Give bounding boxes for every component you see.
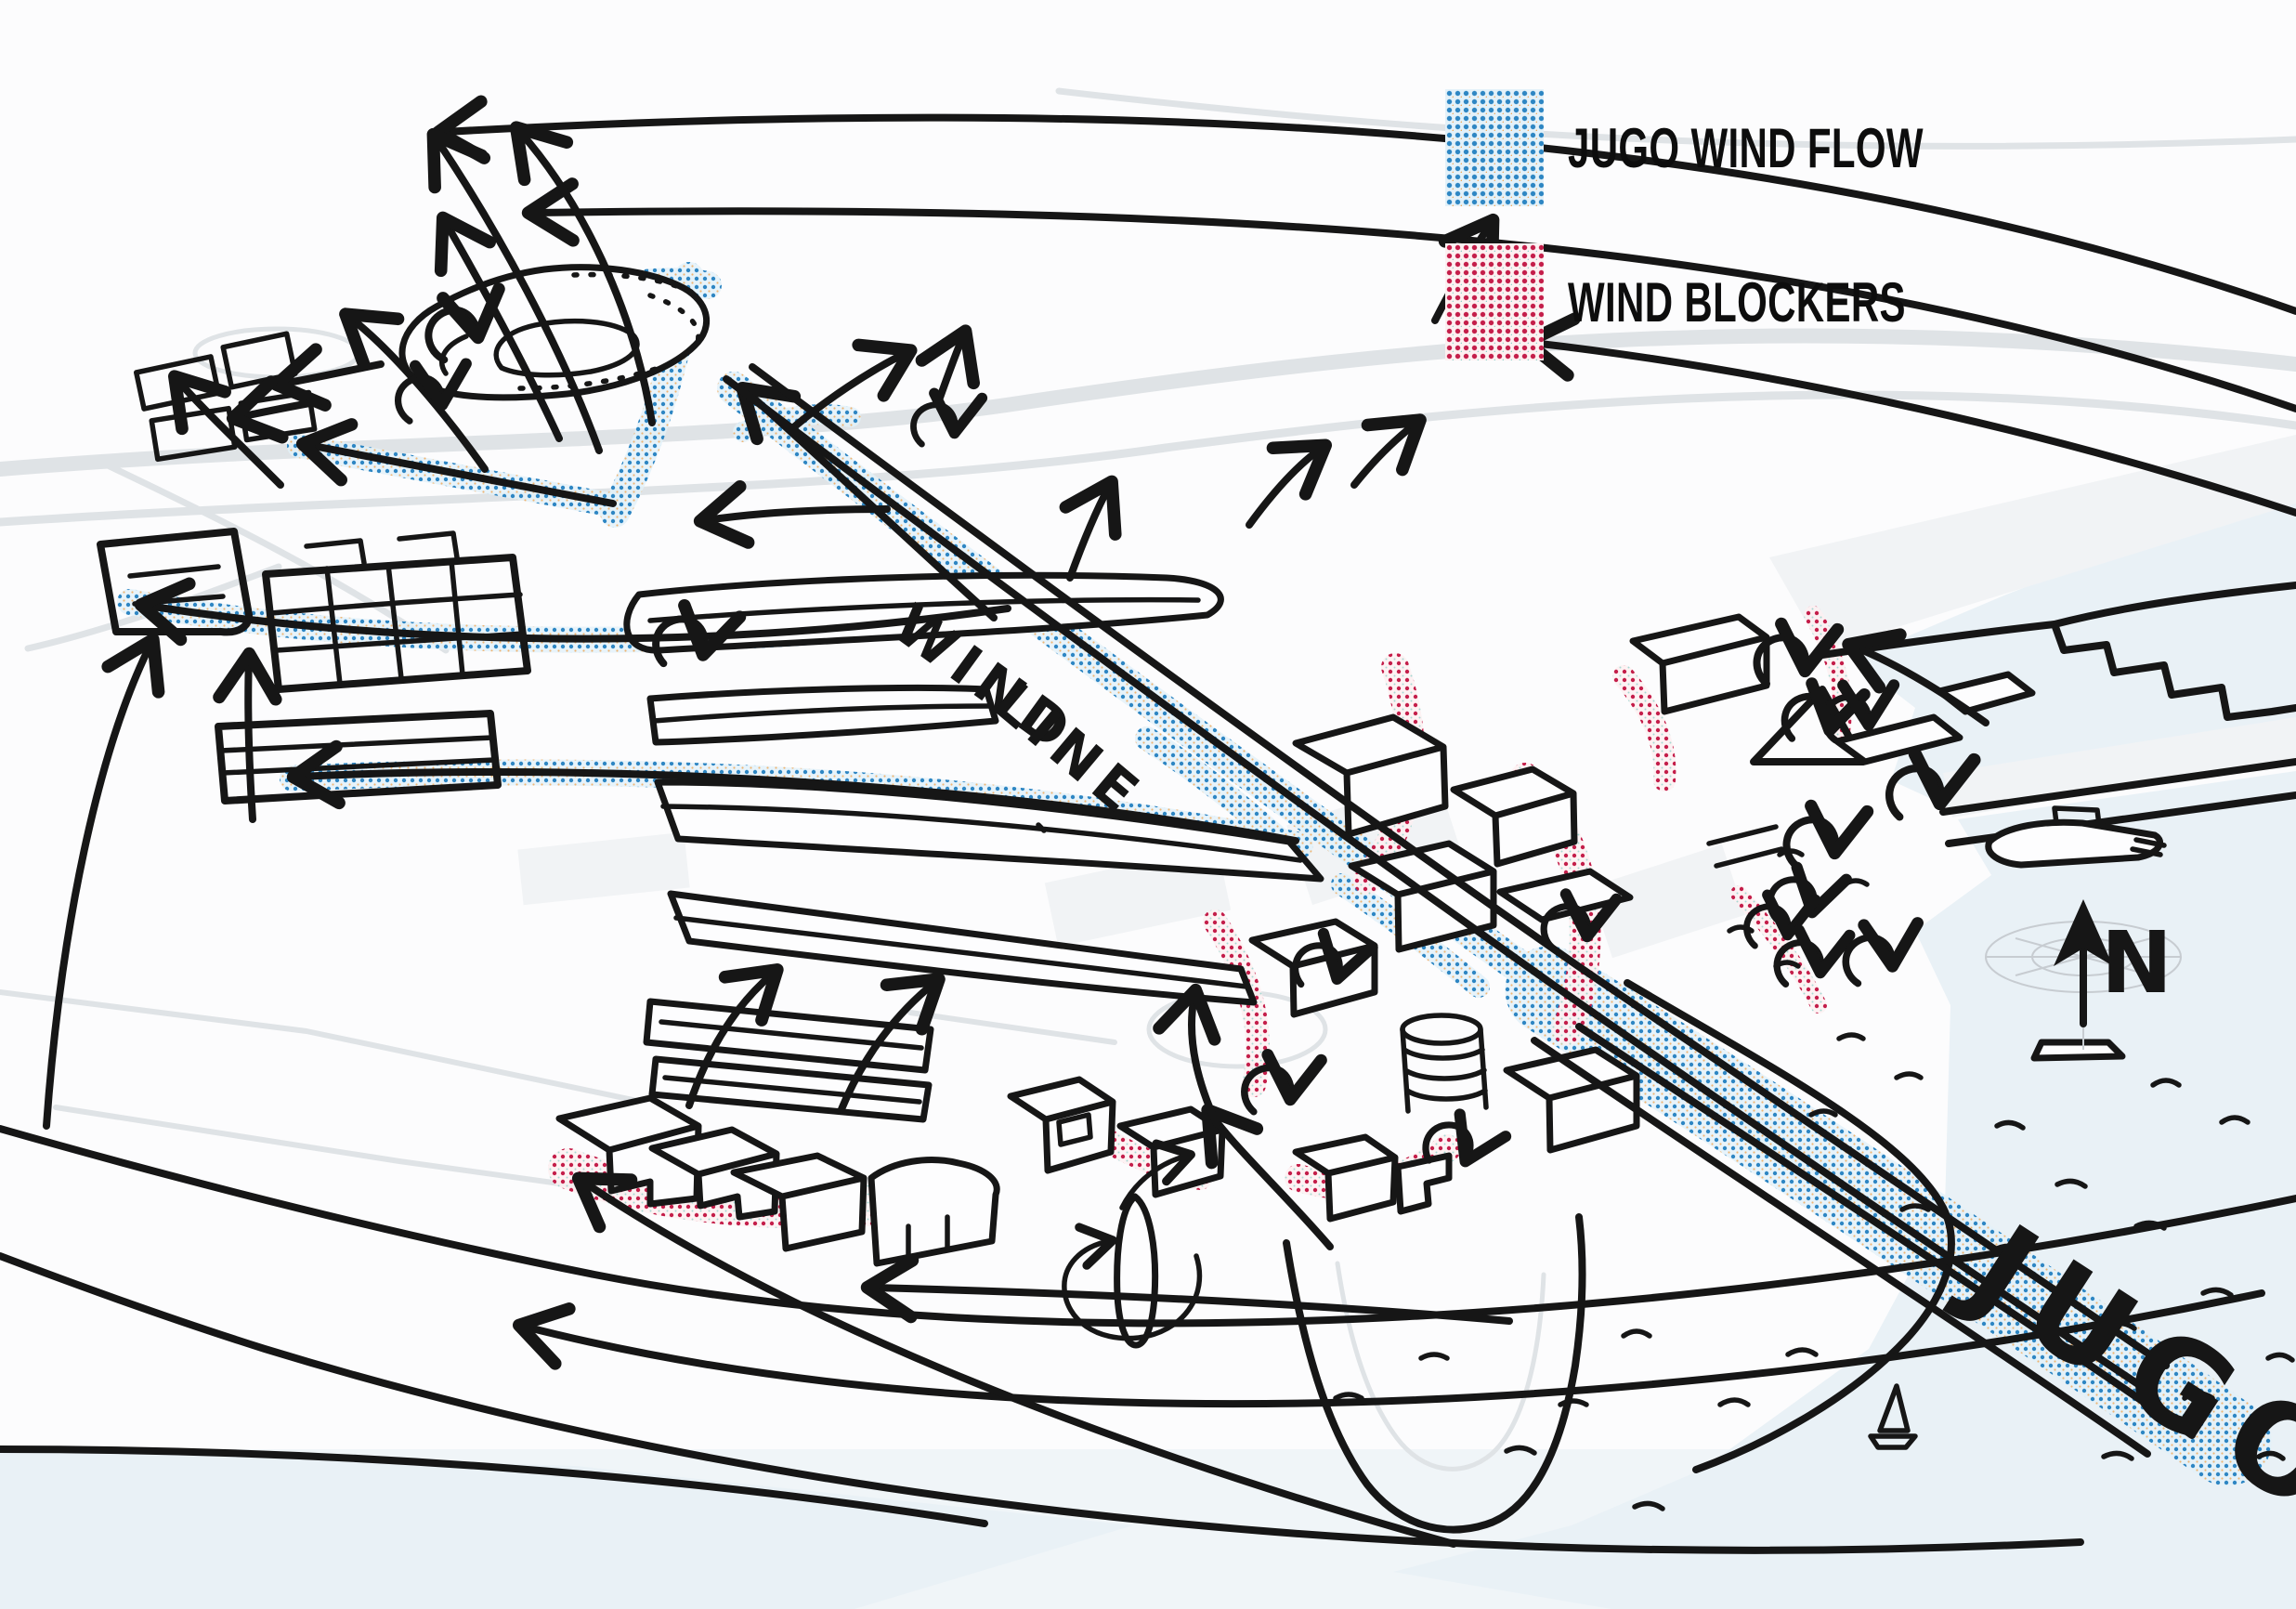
blocker-house-row: [559, 1098, 997, 1263]
centre-house-cluster: [1011, 1079, 1449, 1219]
hatched-cluster: [646, 974, 934, 1119]
wind-blockers-label: WIND BLOCKERS: [1568, 270, 1906, 334]
wind-blockers-swatch: [1445, 243, 1544, 360]
small-boat-sketch: [2034, 1042, 2122, 1058]
legend-item-wind-blockers: WIND BLOCKERS: [1445, 243, 2076, 360]
jugo-wind-flow-label: JUGO WIND FLOW: [1568, 116, 1924, 180]
jugo-wind-flow-swatch: [1445, 89, 1544, 206]
left-block-cluster: [137, 334, 315, 459]
wind-analysis-diagram: { "legend": { "items": [ { "id": "jugo-w…: [0, 0, 2296, 1609]
legend-item-jugo-wind-flow: JUGO WIND FLOW: [1445, 89, 2076, 206]
compass-north-label: N: [2101, 913, 2172, 1013]
ferry-sketch: [1989, 822, 2160, 865]
legend: JUGO WIND FLOW WIND BLOCKERS: [1445, 89, 2076, 360]
